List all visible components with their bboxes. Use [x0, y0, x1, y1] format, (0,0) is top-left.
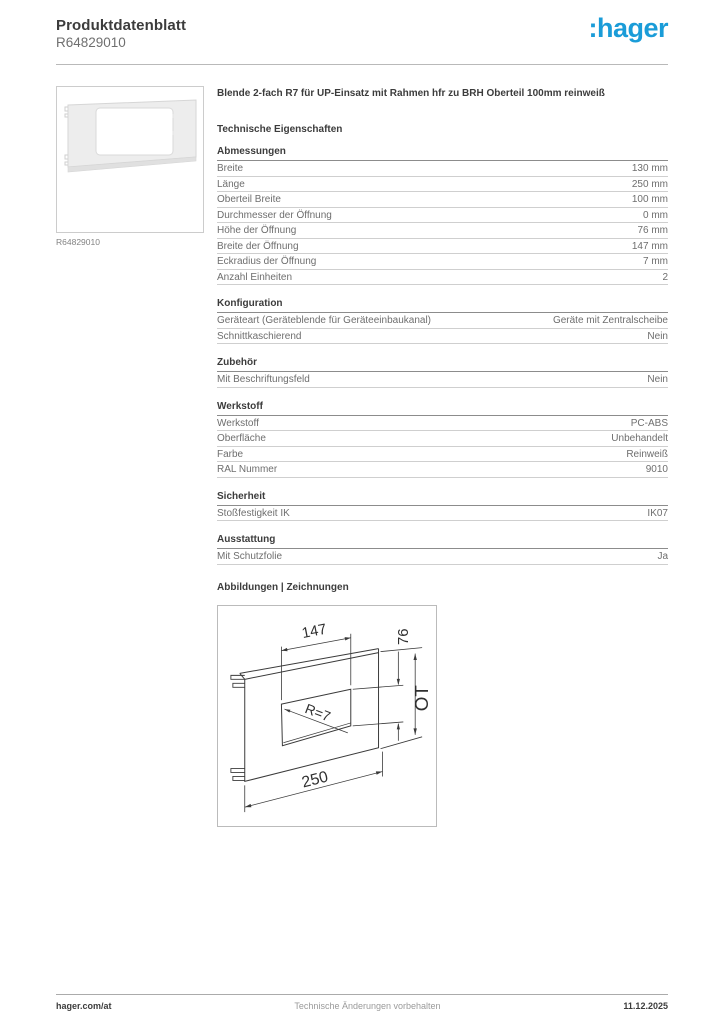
header-divider	[56, 64, 668, 65]
table-row: Mit BeschriftungsfeldNein	[217, 372, 668, 388]
product-photo-graphic	[57, 87, 203, 232]
section-title: Ausstattung	[217, 534, 668, 549]
row-value: Nein	[637, 331, 668, 343]
row-value: Reinweiß	[616, 449, 668, 461]
footer-date: 11.12.2025	[623, 1001, 668, 1011]
row-label: Eckradius der Öffnung	[217, 256, 316, 268]
row-label: Schnittkaschierend	[217, 331, 302, 343]
table-row: Durchmesser der Öffnung0 mm	[217, 208, 668, 224]
spec-section: AusstattungMit SchutzfolieJa	[217, 534, 668, 565]
row-value: 2	[652, 272, 668, 284]
row-value: 76 mm	[627, 225, 668, 237]
table-row: RAL Nummer9010	[217, 462, 668, 478]
drawings-heading: Abbildungen | Zeichnungen	[217, 582, 668, 593]
technical-drawing-graphic: R=7 147	[218, 606, 436, 826]
spec-section: KonfigurationGeräteart (Geräteblende für…	[217, 298, 668, 344]
row-label: Oberteil Breite	[217, 194, 281, 206]
table-row: Breite130 mm	[217, 161, 668, 177]
header: Produktdatenblatt R64829010 :hager	[56, 0, 668, 51]
table-row: SchnittkaschierendNein	[217, 329, 668, 345]
row-label: Mit Beschriftungsfeld	[217, 374, 310, 386]
footer: hager.com/at Technische Änderungen vorbe…	[56, 994, 668, 1011]
row-label: Länge	[217, 179, 245, 191]
row-value: 130 mm	[622, 163, 668, 175]
row-label: Durchmesser der Öffnung	[217, 210, 332, 222]
section-title: Sicherheit	[217, 491, 668, 506]
table-row: WerkstoffPC-ABS	[217, 416, 668, 432]
dim-opening-height-label: 76	[396, 628, 412, 645]
row-value: 250 mm	[622, 179, 668, 191]
row-value: Nein	[637, 374, 668, 386]
dim-oberteil-label: OT	[411, 684, 432, 711]
dim-opening-width-label: 147	[301, 621, 328, 641]
dim-length-label: 250	[300, 768, 330, 791]
section-title: Zubehör	[217, 357, 668, 372]
technical-drawing: R=7 147	[217, 605, 437, 827]
row-value: 147 mm	[622, 241, 668, 253]
row-label: Stoßfestigkeit IK	[217, 508, 290, 520]
spec-section: WerkstoffWerkstoffPC-ABSOberflächeUnbeha…	[217, 401, 668, 478]
row-label: RAL Nummer	[217, 464, 277, 476]
row-label: Breite	[217, 163, 243, 175]
section-title: Konfiguration	[217, 298, 668, 313]
spec-section: SicherheitStoßfestigkeit IKIK07	[217, 491, 668, 522]
table-row: OberflächeUnbehandelt	[217, 431, 668, 447]
row-label: Breite der Öffnung	[217, 241, 299, 253]
table-row: Oberteil Breite100 mm	[217, 192, 668, 208]
row-label: Geräteart (Geräteblende für Geräteeinbau…	[217, 315, 431, 327]
product-reference: R64829010	[56, 35, 668, 51]
section-title: Abmessungen	[217, 146, 668, 161]
row-value: PC-ABS	[621, 418, 668, 430]
table-row: Höhe der Öffnung76 mm	[217, 223, 668, 239]
table-row: Anzahl Einheiten2	[217, 270, 668, 286]
table-row: Stoßfestigkeit IKIK07	[217, 506, 668, 522]
row-label: Anzahl Einheiten	[217, 272, 292, 284]
table-row: Eckradius der Öffnung7 mm	[217, 254, 668, 270]
row-value: 7 mm	[633, 256, 668, 268]
row-value: Unbehandelt	[601, 433, 668, 445]
product-description: Blende 2-fach R7 für UP-Einsatz mit Rahm…	[217, 88, 668, 100]
spec-section: AbmessungenBreite130 mmLänge250 mmOberte…	[217, 146, 668, 285]
table-row: Länge250 mm	[217, 177, 668, 193]
product-image-caption: R64829010	[56, 237, 204, 247]
row-label: Farbe	[217, 449, 243, 461]
technical-properties-heading: Technische Eigenschaften	[217, 124, 668, 135]
row-value: Ja	[647, 551, 668, 563]
row-label: Oberfläche	[217, 433, 266, 445]
table-row: Mit SchutzfolieJa	[217, 549, 668, 565]
row-label: Höhe der Öffnung	[217, 225, 296, 237]
footer-disclaimer: Technische Änderungen vorbehalten	[294, 1001, 440, 1011]
row-label: Mit Schutzfolie	[217, 551, 282, 563]
page-title: Produktdatenblatt	[56, 17, 668, 35]
hager-logo: :hager	[588, 13, 668, 43]
row-value: IK07	[637, 508, 668, 520]
dim-radius-label: R=7	[303, 700, 333, 724]
table-row: Breite der Öffnung147 mm	[217, 239, 668, 255]
row-value: 9010	[636, 464, 668, 476]
footer-website-link[interactable]: hager.com/at	[56, 1001, 112, 1011]
spec-sections: AbmessungenBreite130 mmLänge250 mmOberte…	[217, 146, 668, 565]
product-image	[56, 86, 204, 233]
row-label: Werkstoff	[217, 418, 259, 430]
row-value: 100 mm	[622, 194, 668, 206]
row-value: 0 mm	[633, 210, 668, 222]
datasheet-page: Produktdatenblatt R64829010 :hager	[0, 0, 724, 1024]
table-row: Geräteart (Geräteblende für Geräteeinbau…	[217, 313, 668, 329]
spec-section: ZubehörMit BeschriftungsfeldNein	[217, 357, 668, 388]
section-title: Werkstoff	[217, 401, 668, 416]
row-value: Geräte mit Zentralscheibe	[543, 315, 668, 327]
table-row: FarbeReinweiß	[217, 447, 668, 463]
